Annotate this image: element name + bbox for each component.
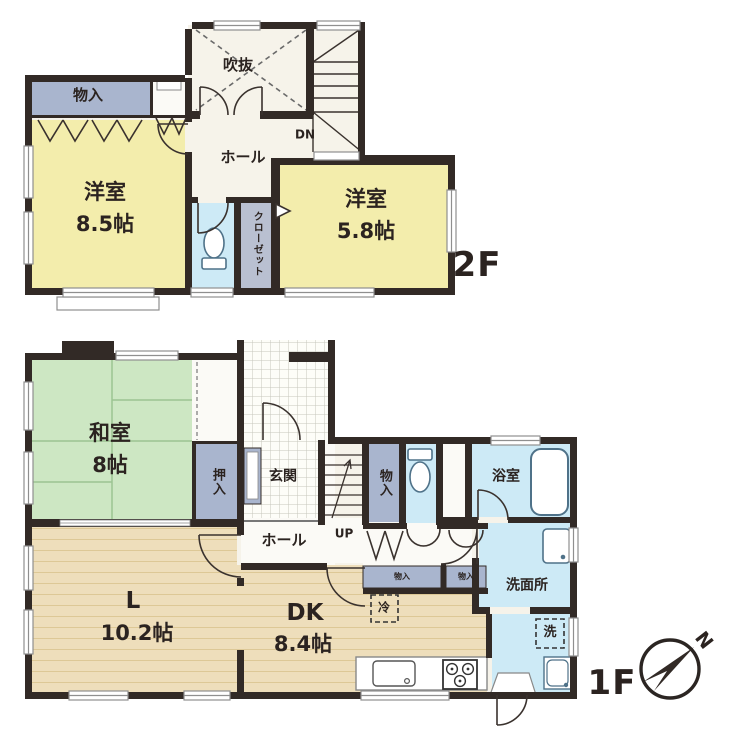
label-stairs-up: UP — [335, 528, 354, 541]
label-bath: 浴室 — [492, 470, 520, 485]
label-washroom: 洗面所 — [506, 579, 548, 594]
label-western-b-size: 5.8帖 — [337, 220, 395, 242]
label-storage-2f: 物入 — [73, 88, 103, 104]
label-western-b: 洋室 — [345, 188, 387, 210]
toilet-icon-2f — [202, 228, 226, 269]
label-oshiire: 押入 — [210, 468, 224, 496]
label-hall-2f: ホール — [220, 150, 265, 166]
balcony — [57, 297, 159, 310]
floor-plan-canvas: 物入 吹抜 DN ホール 洋室 8.5帖 洋室 5.8帖 クローゼット 2F 和… — [0, 0, 750, 750]
label-hall-1f: ホール — [261, 533, 306, 549]
label-washer: 洗 — [543, 626, 556, 640]
label-fridge: 冷 — [378, 602, 390, 615]
label-storage-tall: 物入 — [377, 469, 391, 497]
label-dk-size: 8.4帖 — [274, 633, 332, 655]
label-floor-1f: 1F — [588, 666, 637, 702]
toilet-icon-1f — [408, 449, 432, 492]
sink-icon — [543, 529, 570, 563]
western-room-85-area — [32, 120, 185, 288]
label-living: L — [126, 589, 141, 613]
label-cabinet-b: 物入 — [458, 573, 474, 581]
label-floor-2f: 2F — [453, 248, 502, 284]
label-western-a-size: 8.5帖 — [76, 213, 134, 235]
label-void: 吹抜 — [223, 58, 253, 74]
label-cabinet-a: 物入 — [394, 573, 410, 581]
label-entrance: 玄関 — [269, 470, 297, 485]
alcove-area — [192, 360, 237, 441]
label-western-a: 洋室 — [84, 181, 126, 203]
label-japanese-room-size: 8帖 — [92, 454, 128, 476]
label-living-size: 10.2帖 — [101, 622, 174, 644]
bathtub-icon — [531, 449, 568, 515]
kitchen-counter — [356, 657, 487, 690]
label-stairs-down: DN — [295, 129, 315, 142]
compass-icon — [641, 640, 699, 698]
label-dk: DK — [287, 601, 324, 625]
back-door-step — [490, 673, 536, 695]
label-japanese-room: 和室 — [89, 422, 131, 444]
washer-pan-icon — [544, 657, 571, 689]
back-door — [497, 695, 527, 725]
label-closet-2f: クローゼット — [251, 211, 262, 277]
